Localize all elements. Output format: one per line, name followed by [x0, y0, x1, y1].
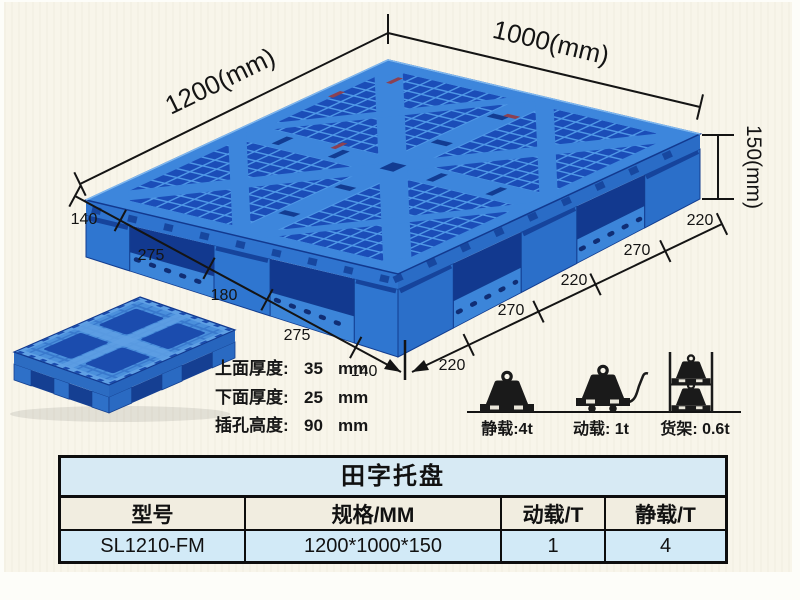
right-chain-label-2: 270: [498, 302, 525, 319]
load-capacity-icons: 静载:4t 动载: 1t 货架: 0.6t: [467, 352, 741, 438]
cell-size: 1200*1000*150: [244, 531, 500, 561]
spec-bottom-thickness-label: 下面厚度:: [215, 387, 289, 407]
spec-top-thickness-label: 上面厚度:: [215, 358, 289, 378]
spec-top-thickness-value: 35: [304, 359, 323, 378]
cell-model: SL1210-FM: [61, 531, 244, 561]
right-chain-label-4: 270: [624, 242, 651, 259]
header-model: 型号: [61, 498, 244, 529]
dynamic-load-icon: [576, 366, 648, 412]
table-data-row: SL1210-FM 1200*1000*150 1 4: [61, 531, 725, 561]
dynamic-load-label: 动载: 1t: [573, 420, 630, 438]
table-header-row: 型号 规格/MM 动载/T 静载/T: [61, 498, 725, 531]
cell-dynamic-load: 1: [500, 531, 604, 561]
spec-table: 田字托盘 型号 规格/MM 动载/T 静载/T SL1210-FM 1200*1…: [58, 455, 728, 564]
left-chain-label-1: 140: [71, 211, 98, 228]
header-dynamic-load: 动载/T: [500, 498, 604, 529]
small-pallet-illustration: [10, 297, 235, 422]
rack-load-icon: [670, 352, 712, 412]
rack-load-label: 货架: 0.6t: [660, 419, 730, 438]
right-chain-label-1: 220: [439, 357, 466, 374]
left-chain-label-3: 180: [211, 287, 238, 304]
spec-fork-height-label: 插孔高度:: [215, 415, 289, 435]
left-chain-label-4: 275: [284, 327, 311, 344]
table-title: 田字托盘: [61, 458, 725, 498]
static-load-label: 静载:4t: [481, 419, 533, 438]
thickness-specs: 上面厚度: 35 mm 下面厚度: 25 mm 插孔高度: 90 mm: [215, 358, 368, 435]
pallet-dimension-diagram: 1200(mm) 1000(mm) 150(mm) 140 275 180 27…: [0, 0, 800, 460]
left-chain-label-2: 275: [138, 247, 165, 264]
header-size: 规格/MM: [244, 498, 500, 529]
header-static-load: 静载/T: [604, 498, 725, 529]
right-chain-label-3: 220: [561, 272, 588, 289]
pallet-spec-sheet: 1200(mm) 1000(mm) 150(mm) 140 275 180 27…: [0, 0, 800, 600]
spec-bottom-thickness-unit: mm: [338, 388, 368, 407]
spec-fork-height-unit: mm: [338, 416, 368, 435]
spec-fork-height-value: 90: [304, 416, 323, 435]
static-load-icon: [480, 372, 534, 412]
dim-length-label: 1200(mm): [160, 41, 280, 120]
spec-top-thickness-unit: mm: [338, 359, 368, 378]
dim-height-label: 150(mm): [742, 125, 765, 209]
right-chain-label-5: 220: [687, 212, 714, 229]
cell-static-load: 4: [604, 531, 725, 561]
spec-bottom-thickness-value: 25: [304, 388, 323, 407]
dimension-arrowheads: [384, 359, 429, 372]
